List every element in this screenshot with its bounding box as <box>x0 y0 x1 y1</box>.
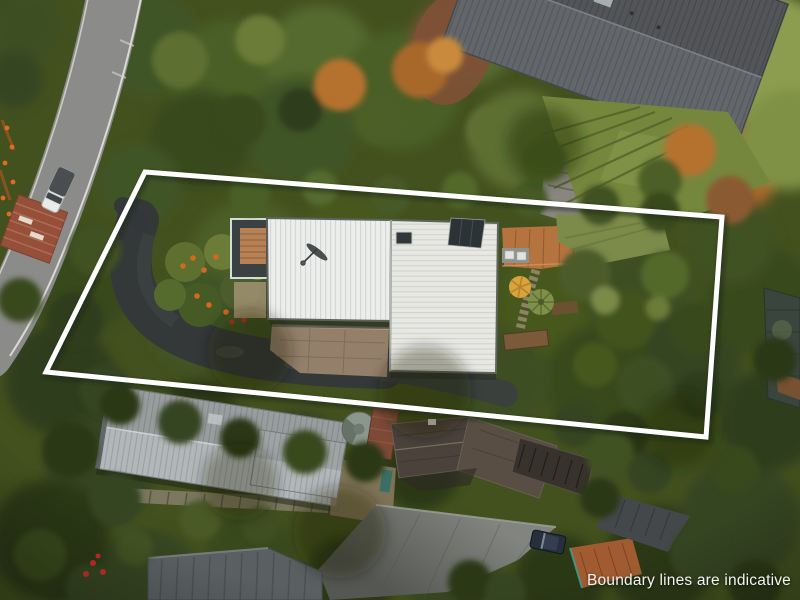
caption-text: Boundary lines are indicative <box>587 572 791 589</box>
aerial-scene: Boundary lines are indicative <box>0 0 800 600</box>
vignette <box>0 0 800 600</box>
aerial-property-photo: Boundary lines are indicative <box>0 0 800 600</box>
